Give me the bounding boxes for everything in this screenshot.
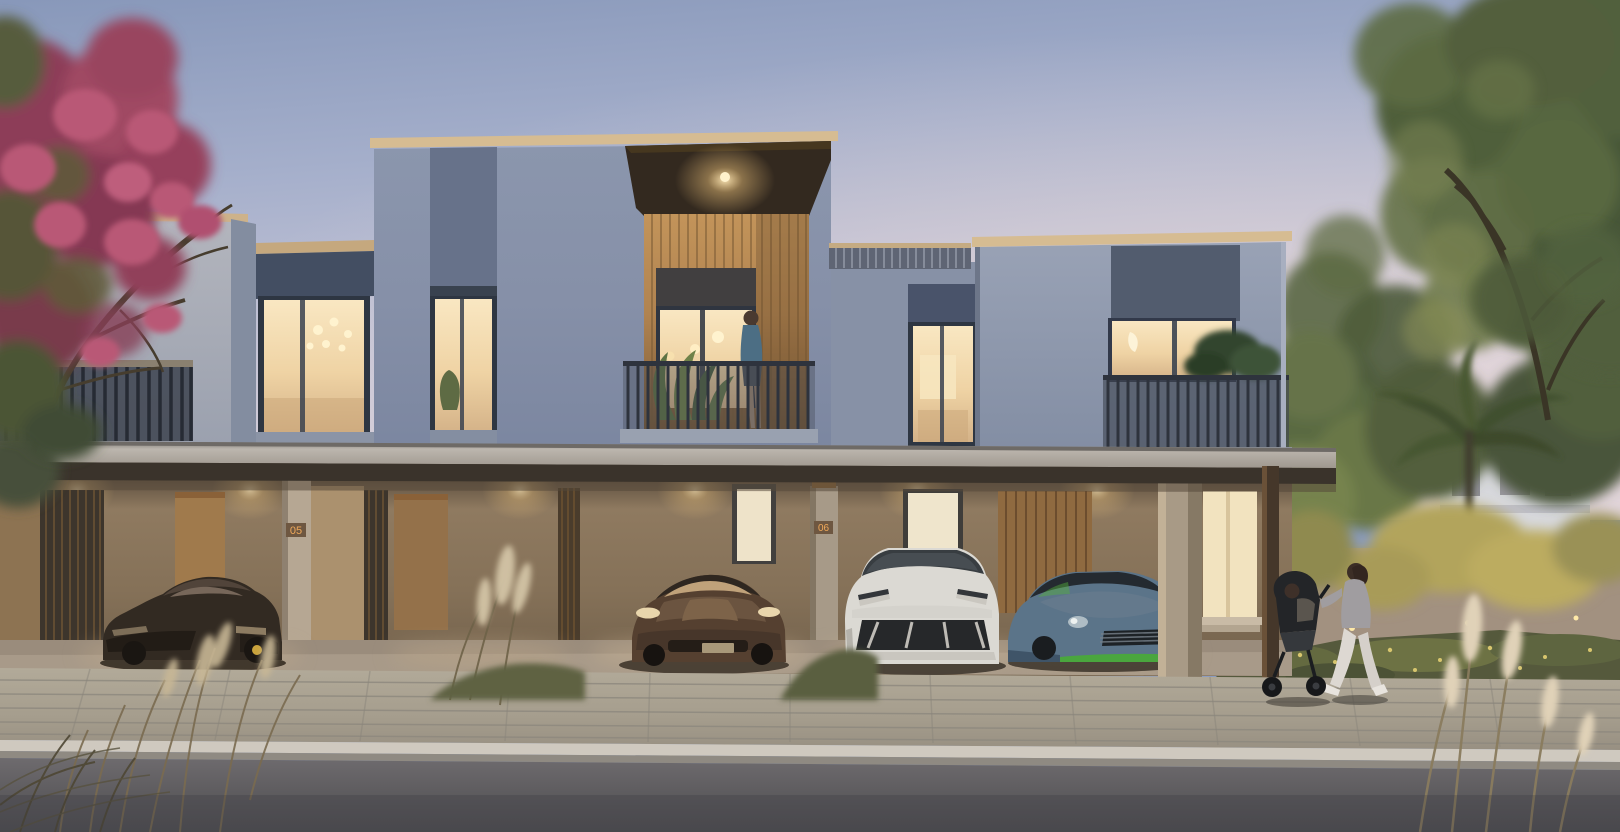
svg-text:05: 05 <box>290 525 302 537</box>
svg-text:06: 06 <box>818 523 830 534</box>
